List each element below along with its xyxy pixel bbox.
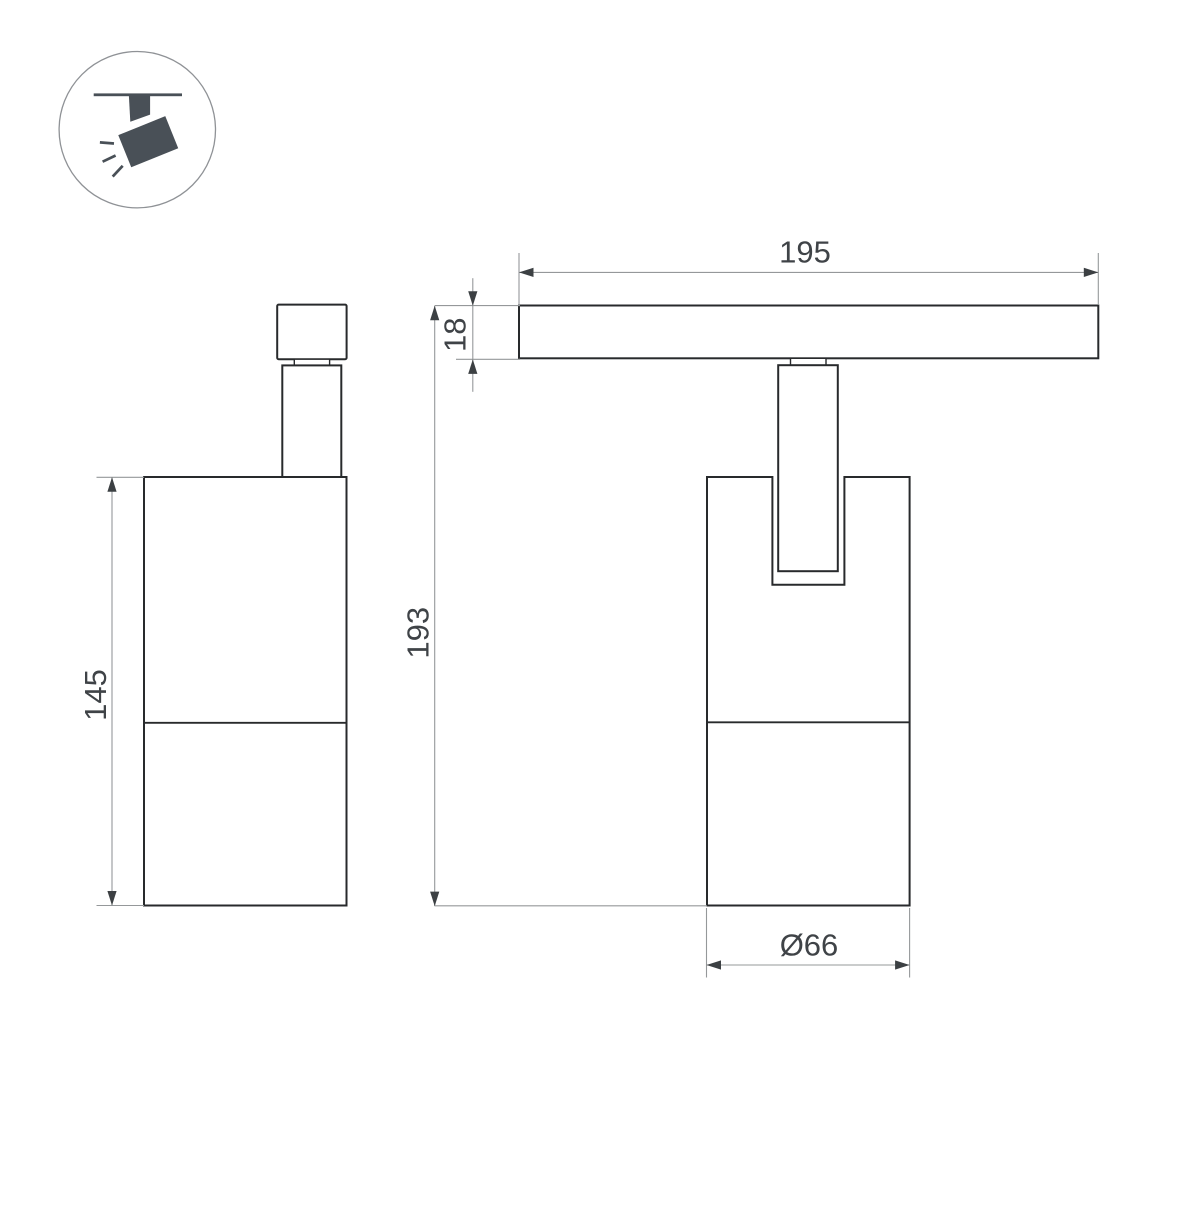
svg-text:193: 193 [401, 607, 436, 659]
svg-text:18: 18 [438, 318, 473, 352]
svg-text:145: 145 [78, 669, 113, 721]
svg-text:195: 195 [779, 235, 831, 270]
svg-text:Ø66: Ø66 [780, 928, 839, 963]
